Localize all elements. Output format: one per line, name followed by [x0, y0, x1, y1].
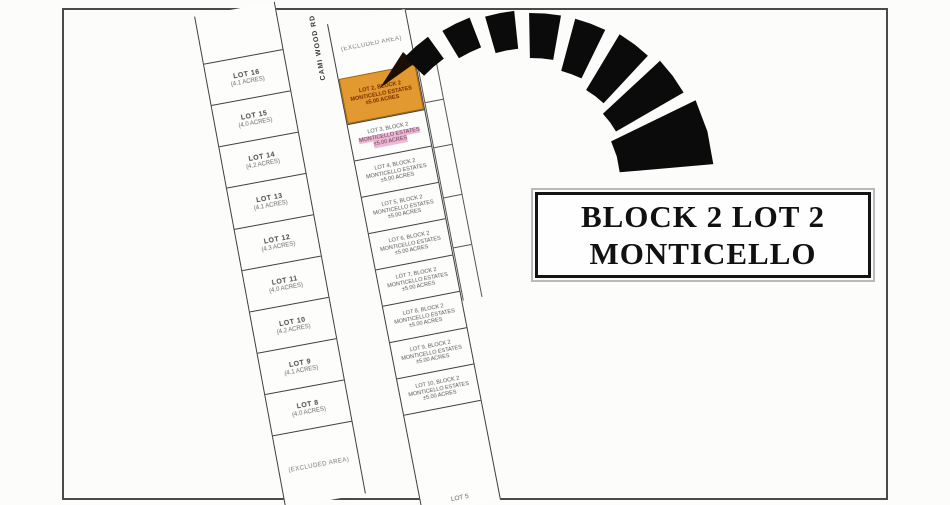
- map-frame-right: [886, 8, 888, 500]
- lot-parcel: LOT 5: [404, 400, 500, 505]
- callout-box: BLOCK 2 LOT 2 MONTICELLO: [535, 192, 871, 278]
- road-label: CAMI WOOD RD: [306, 0, 330, 97]
- excluded-area-label-bottom: (EXCLUDED AREA): [273, 421, 365, 505]
- map-frame-left: [62, 8, 64, 500]
- plat-map-page: LOT 16 (4.1 ACRES) LOT 15 (4.0 ACRES) LO…: [0, 0, 950, 505]
- map-frame-top: [62, 8, 888, 10]
- callout-line1: BLOCK 2 LOT 2: [581, 198, 825, 235]
- callout-line2: MONTICELLO: [589, 235, 816, 272]
